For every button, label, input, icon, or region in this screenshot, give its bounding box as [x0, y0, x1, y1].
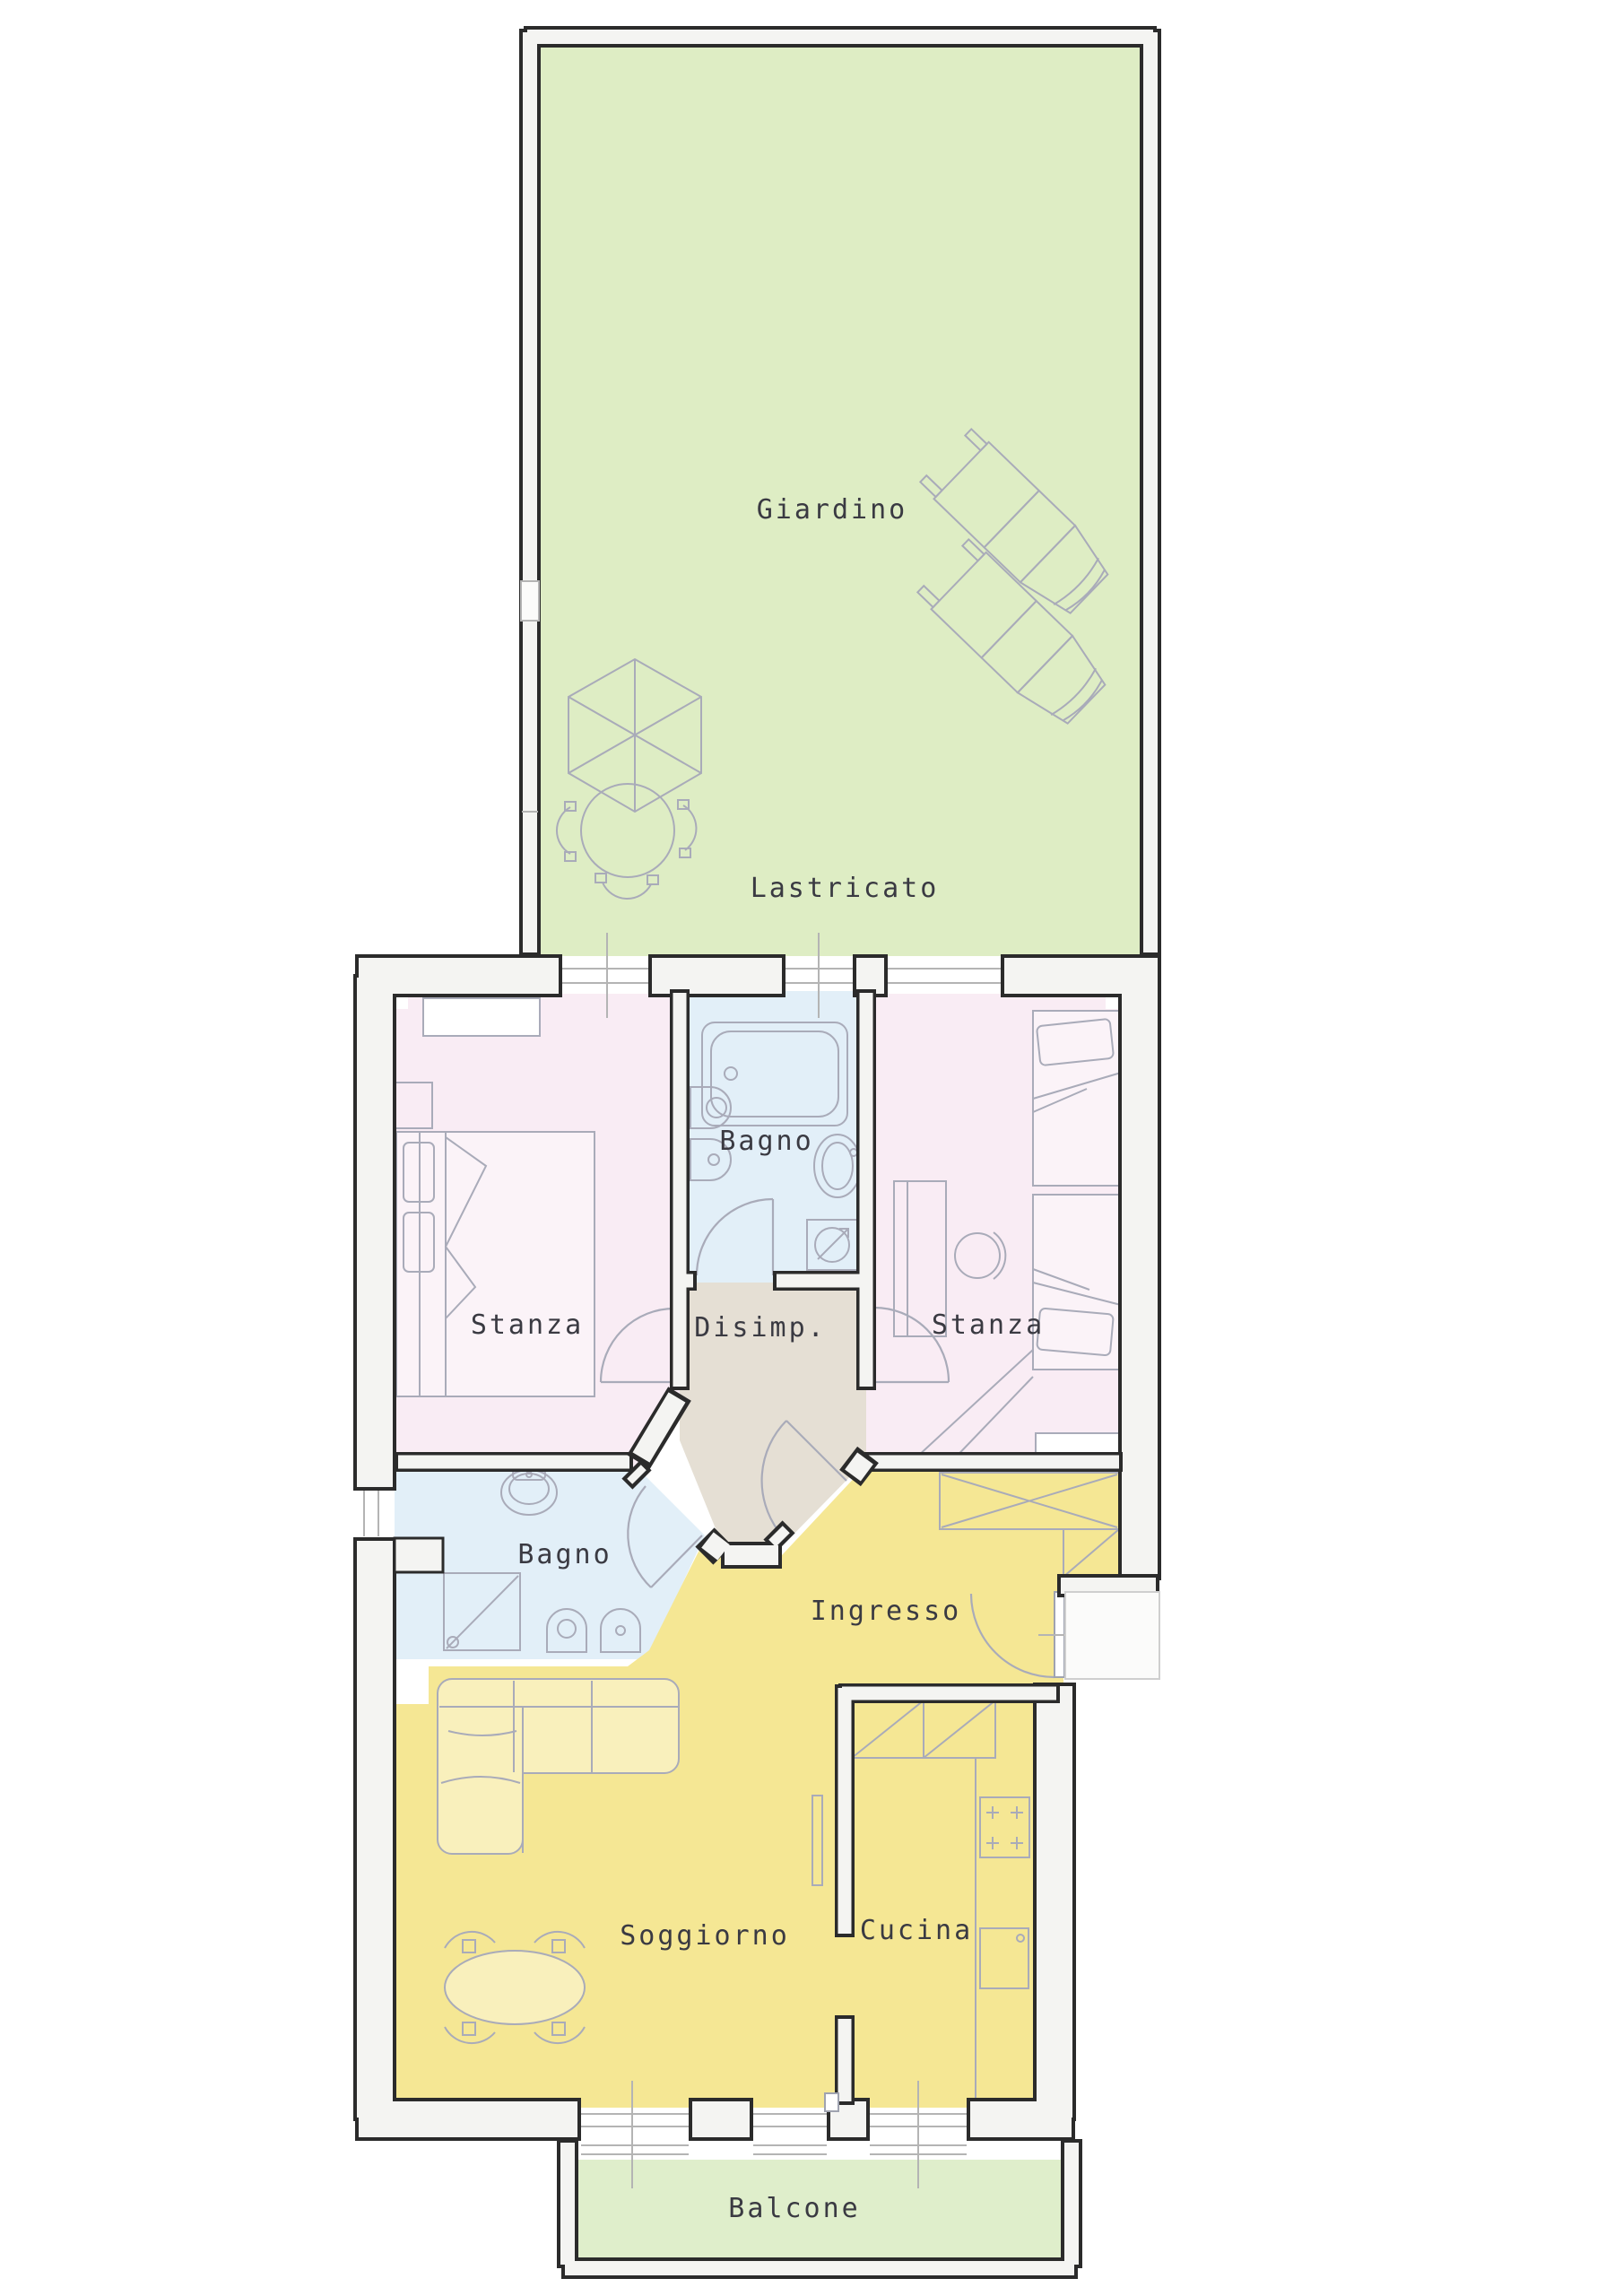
entrance-landing	[1065, 1592, 1159, 1679]
single-bed-icon	[1033, 1011, 1121, 1186]
dresser-icon	[423, 998, 540, 1036]
label-lastricato: Lastricato	[751, 873, 940, 904]
label-balcone: Balcone	[728, 2193, 860, 2224]
label-bagno-nord: Bagno	[719, 1126, 813, 1157]
label-stanza-ovest: Stanza	[471, 1309, 584, 1341]
label-bagno-sud: Bagno	[517, 1539, 612, 1570]
floor-plan-page: Giardino Lastricato Bagno Stanza Disimp.…	[0, 0, 1623, 2296]
bench-icon	[1036, 1433, 1121, 1455]
label-stanza-est: Stanza	[932, 1309, 1045, 1341]
balcony-door-leaf	[825, 2093, 838, 2111]
label-cucina: Cucina	[860, 1915, 973, 1946]
wall-pier	[395, 1538, 443, 1572]
label-giardino: Giardino	[757, 494, 908, 526]
window-icon	[357, 1491, 393, 1536]
double-bed-icon	[396, 1132, 595, 1396]
label-soggiorno: Soggiorno	[620, 1920, 790, 1952]
label-ingresso: Ingresso	[811, 1596, 962, 1627]
floor-plan-svg: Giardino Lastricato Bagno Stanza Disimp.…	[0, 0, 1623, 2296]
label-disimpegno: Disimp.	[694, 1312, 826, 1344]
single-bed-icon	[1033, 1195, 1121, 1370]
